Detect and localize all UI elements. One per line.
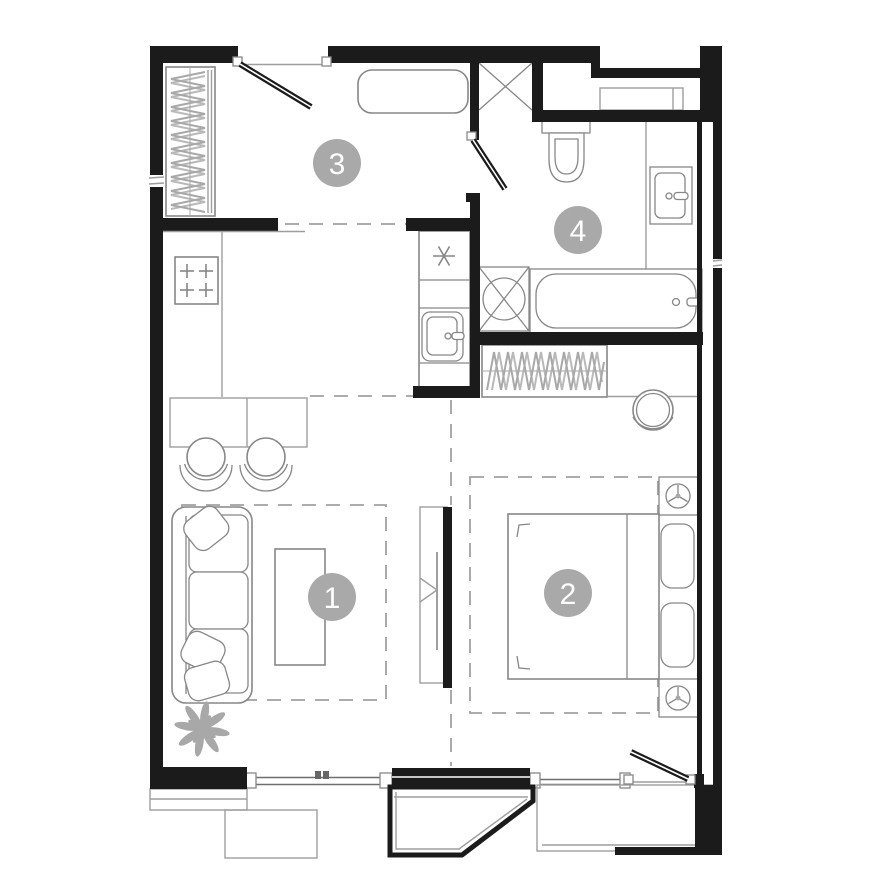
room-label-3-text: 3 xyxy=(329,148,346,181)
balcony xyxy=(225,810,317,858)
bathroom-faucet xyxy=(674,193,688,200)
window-mullion xyxy=(323,771,329,779)
wall-kitchen-stub xyxy=(406,218,471,231)
door-stop-marker xyxy=(624,775,633,784)
bathtub-drain xyxy=(673,299,680,306)
living-room xyxy=(172,502,447,757)
door-stop-marker xyxy=(322,57,331,66)
hall-kitchen xyxy=(166,65,470,492)
floor-plan-canvas: 1 2 3 4 xyxy=(0,0,880,880)
room-label-1-text: 1 xyxy=(324,582,341,615)
room-label-4-text: 4 xyxy=(570,215,587,248)
stove xyxy=(175,257,218,304)
wall-joint-mark xyxy=(148,175,165,187)
wall-kitchen-stub xyxy=(413,386,471,398)
balcony-wall xyxy=(615,847,722,855)
wall-top xyxy=(150,46,238,63)
kitchen-faucet xyxy=(445,333,451,339)
bar-stool xyxy=(187,438,225,476)
wall-bathroom-bottom xyxy=(470,332,703,345)
bathroom-faucet xyxy=(666,193,672,199)
tv-partition-wall xyxy=(443,507,452,688)
walls xyxy=(148,46,723,855)
entry-bench xyxy=(358,70,468,113)
kitchen-faucet xyxy=(452,333,464,340)
wall-hall-bath xyxy=(470,63,479,140)
bar-table xyxy=(170,398,307,447)
entrance-door-leaf-core xyxy=(240,64,311,107)
wall-right-inner xyxy=(697,120,702,785)
tv-console xyxy=(420,507,447,683)
balcony-door-leaf-core xyxy=(631,752,688,779)
wall-door-cap xyxy=(466,193,480,202)
bed-pillow xyxy=(661,603,694,667)
wall-niche xyxy=(600,88,683,110)
wall-hall-stub xyxy=(162,218,278,231)
plant xyxy=(174,701,231,758)
bar-stool xyxy=(247,438,285,476)
bedroom xyxy=(482,345,698,717)
room-label-3: 3 xyxy=(313,139,361,187)
wall-left xyxy=(150,46,163,789)
wall-duct xyxy=(532,63,543,122)
door-hinge-marker xyxy=(467,132,476,140)
bathroom xyxy=(479,63,702,333)
window-mullion xyxy=(315,771,321,779)
wall-bottom-left xyxy=(150,767,247,789)
wall-top xyxy=(328,46,600,63)
bathroom-door-leaf-core xyxy=(473,140,505,189)
bed-pillow xyxy=(661,524,694,588)
floor-plan: 1 2 3 4 xyxy=(0,0,880,880)
wall-bathroom-top xyxy=(532,110,722,122)
toilet-bowl-inner xyxy=(555,139,578,174)
wall-right-outer xyxy=(713,46,722,855)
room-label-1: 1 xyxy=(308,573,356,621)
wall-joint-mark xyxy=(712,259,723,268)
room-label-2: 2 xyxy=(544,569,592,617)
room-label-4: 4 xyxy=(554,206,602,254)
room-label-2-text: 2 xyxy=(560,578,577,611)
balcony xyxy=(537,785,713,851)
wall-hall-bath xyxy=(470,195,480,398)
sofa-cushion xyxy=(189,572,248,629)
